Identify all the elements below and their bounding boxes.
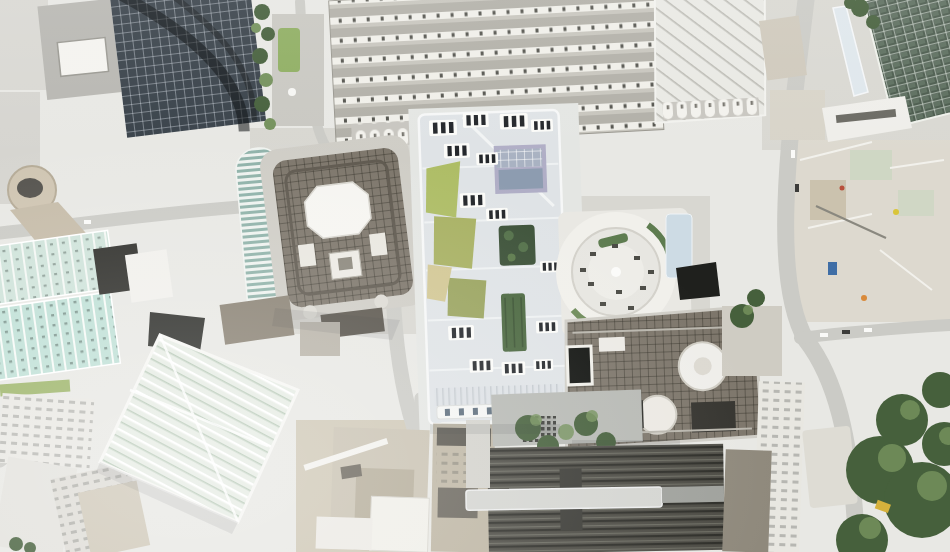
top-wash: [0, 0, 950, 552]
aerial-photo: [0, 0, 950, 552]
aerial-photo-svg: [0, 0, 950, 552]
